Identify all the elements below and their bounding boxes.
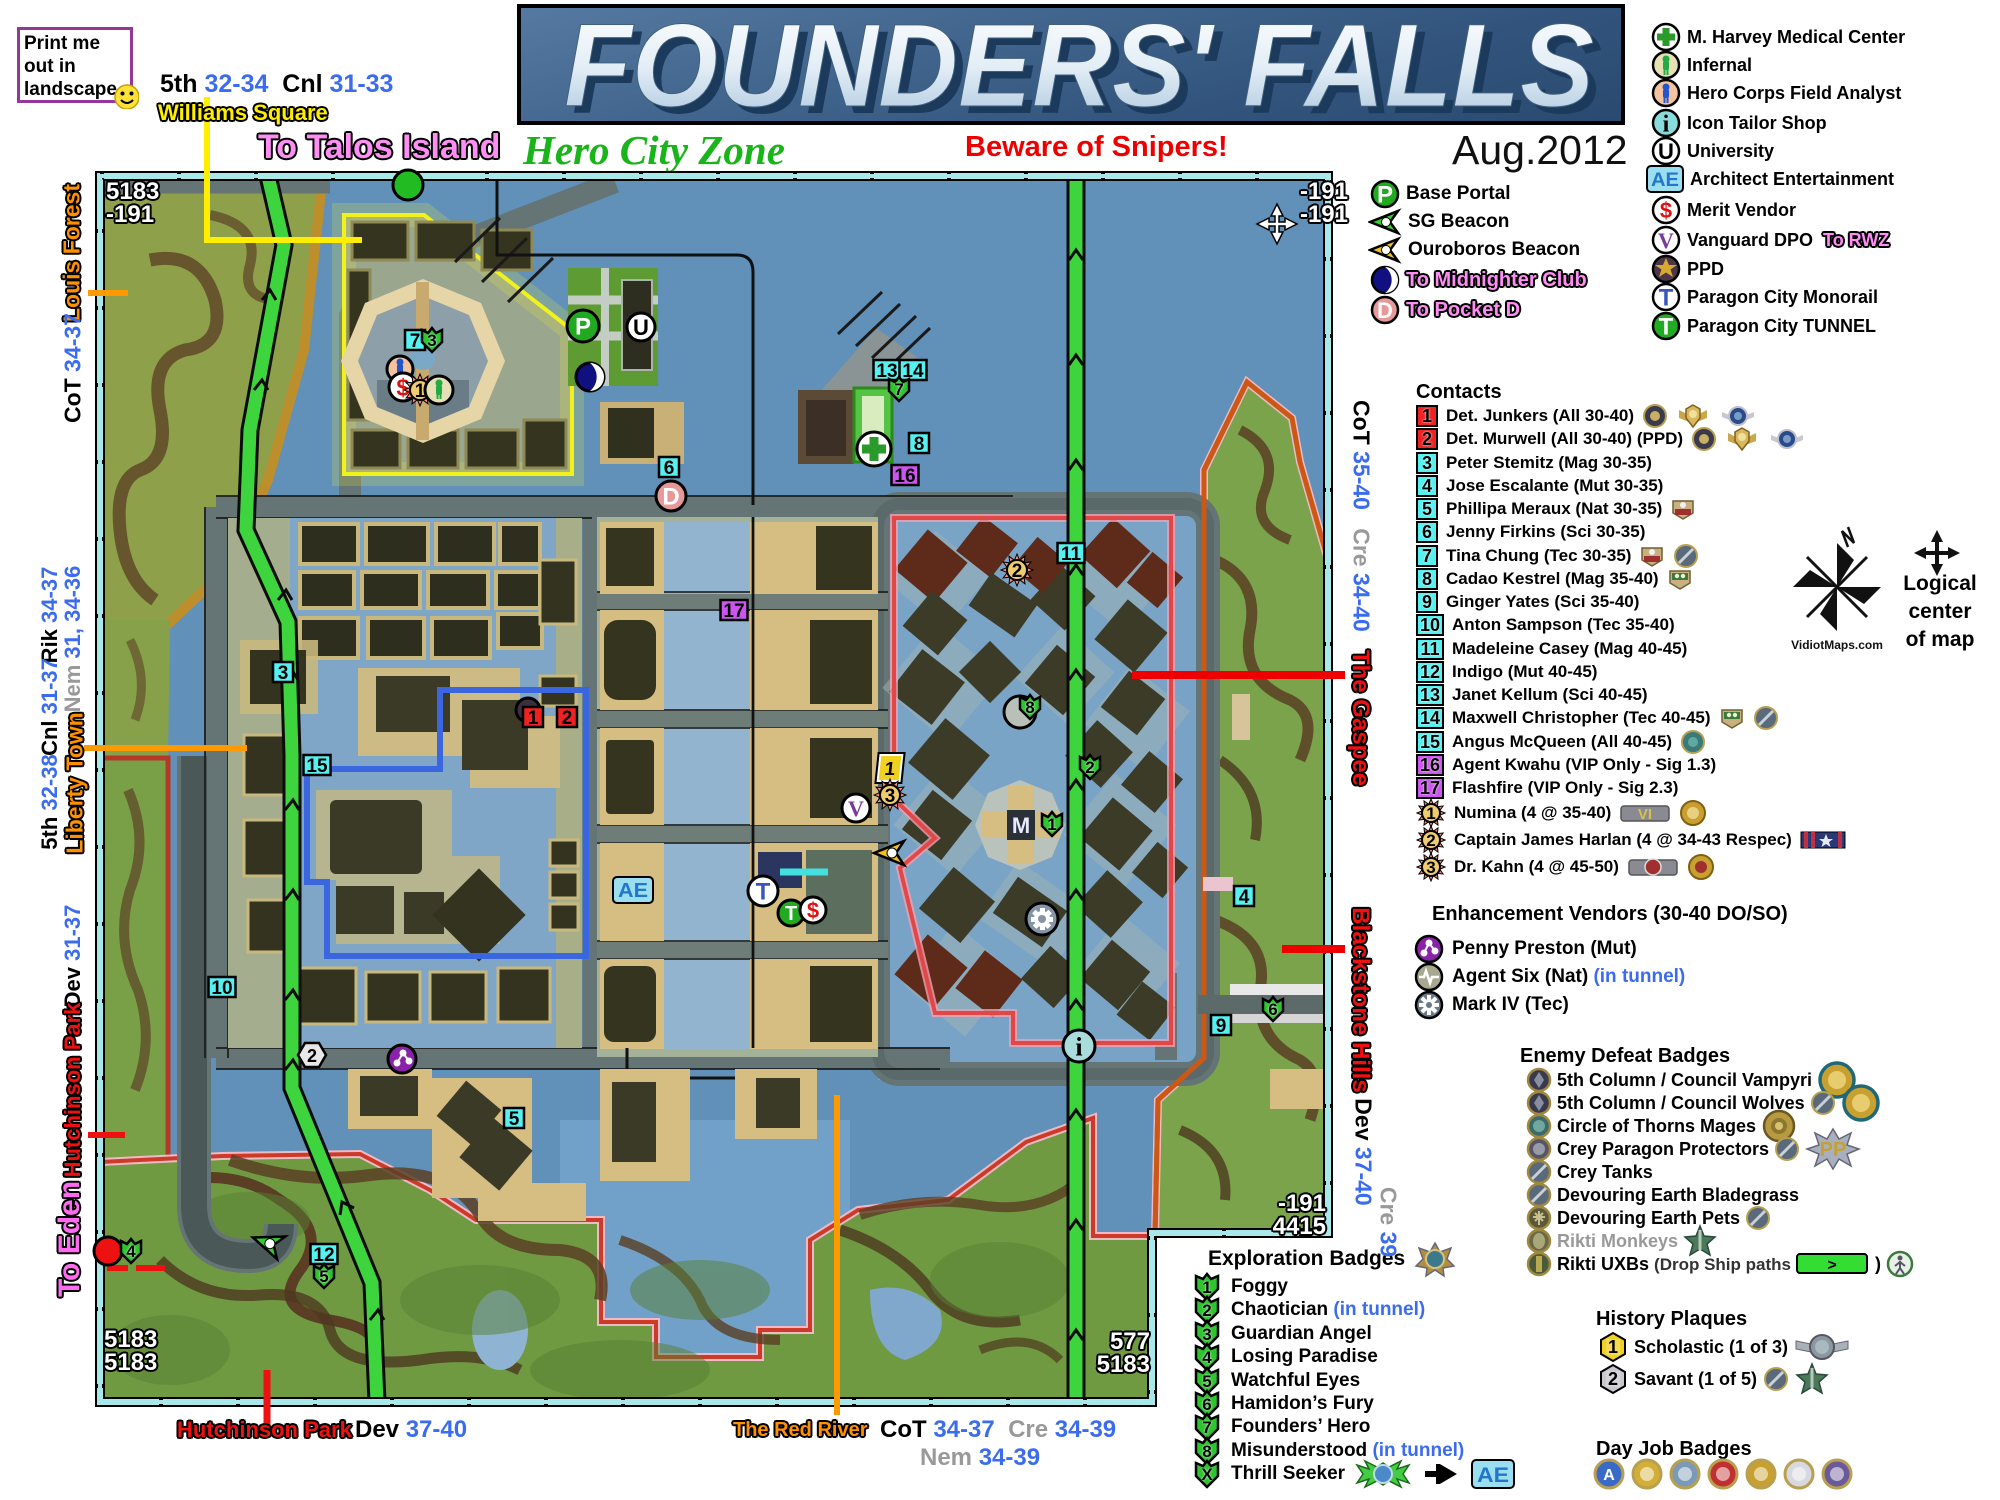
svg-text:2: 2 xyxy=(307,1046,317,1066)
svg-text:12: 12 xyxy=(1420,662,1440,682)
svg-text:>: > xyxy=(1827,1257,1836,1274)
svg-text:D: D xyxy=(662,484,679,511)
svg-text:4: 4 xyxy=(1202,1348,1212,1367)
svg-text:M: M xyxy=(1012,813,1030,838)
svg-text:P: P xyxy=(1377,182,1393,209)
svg-text:$: $ xyxy=(1660,198,1672,223)
svg-text:1: 1 xyxy=(1608,1337,1618,1357)
svg-text:AE: AE xyxy=(1651,170,1679,191)
svg-text:U: U xyxy=(1658,139,1674,164)
svg-text:1: 1 xyxy=(1422,406,1432,426)
svg-text:10: 10 xyxy=(211,978,232,999)
svg-text:9: 9 xyxy=(1422,592,1432,612)
svg-text:1: 1 xyxy=(1426,804,1435,823)
svg-text:17: 17 xyxy=(1420,778,1440,798)
svg-text:5: 5 xyxy=(1422,499,1432,519)
svg-text:7: 7 xyxy=(410,331,421,352)
svg-text:2: 2 xyxy=(1426,831,1435,850)
svg-text:8: 8 xyxy=(1422,569,1432,589)
svg-text:8: 8 xyxy=(1202,1442,1211,1461)
svg-text:1: 1 xyxy=(1047,815,1056,834)
svg-text:T: T xyxy=(785,903,797,925)
svg-text:P: P xyxy=(575,314,591,341)
svg-text:3: 3 xyxy=(1426,858,1435,877)
svg-text:PP: PP xyxy=(1820,1139,1847,1161)
svg-text:6: 6 xyxy=(1422,522,1432,542)
svg-text:11: 11 xyxy=(1061,544,1082,565)
svg-text:13: 13 xyxy=(876,361,897,382)
svg-text:16: 16 xyxy=(894,466,915,487)
svg-text:8: 8 xyxy=(1025,698,1034,717)
svg-text:3: 3 xyxy=(1422,453,1432,473)
svg-text:14: 14 xyxy=(902,361,924,382)
svg-text:8: 8 xyxy=(914,434,925,455)
svg-text:VidiotMaps.com: VidiotMaps.com xyxy=(1791,638,1883,652)
svg-text:A: A xyxy=(1603,1467,1615,1484)
svg-text:V: V xyxy=(848,796,864,821)
svg-text:5: 5 xyxy=(319,1267,328,1286)
svg-text:3: 3 xyxy=(427,331,436,350)
svg-text:D: D xyxy=(1377,298,1393,323)
svg-text:6: 6 xyxy=(1202,1395,1211,1414)
svg-text:$: $ xyxy=(807,898,819,923)
svg-text:T: T xyxy=(1659,314,1674,341)
svg-text:2: 2 xyxy=(562,708,573,729)
svg-text:T: T xyxy=(756,879,771,906)
svg-text:2: 2 xyxy=(1012,561,1023,582)
svg-text:4: 4 xyxy=(1422,476,1432,496)
svg-text:6: 6 xyxy=(664,458,675,479)
svg-text:16: 16 xyxy=(1420,755,1440,775)
svg-text:i: i xyxy=(1663,112,1670,138)
svg-text:5: 5 xyxy=(509,1109,520,1130)
svg-text:14: 14 xyxy=(1420,708,1440,728)
svg-text:6: 6 xyxy=(1268,1000,1277,1019)
svg-text:2: 2 xyxy=(1085,758,1094,777)
svg-text:VI: VI xyxy=(1638,806,1652,823)
svg-text:AE: AE xyxy=(618,880,648,902)
svg-text:11: 11 xyxy=(1420,639,1439,659)
svg-text:T: T xyxy=(1659,285,1674,312)
svg-text:10: 10 xyxy=(1420,615,1440,635)
svg-text:3: 3 xyxy=(1202,1325,1211,1344)
svg-text:2: 2 xyxy=(1608,1369,1618,1389)
svg-text:13: 13 xyxy=(1420,685,1440,705)
svg-text:AE: AE xyxy=(1477,1464,1509,1487)
svg-text:X: X xyxy=(1201,1465,1213,1484)
svg-text:17: 17 xyxy=(723,601,744,622)
svg-text:V: V xyxy=(1658,228,1674,253)
svg-text:3: 3 xyxy=(885,786,896,807)
svg-text:2: 2 xyxy=(1202,1301,1211,1320)
svg-text:4: 4 xyxy=(126,1242,136,1261)
svg-text:U: U xyxy=(633,315,649,340)
svg-text:7: 7 xyxy=(1422,546,1432,566)
svg-text:15: 15 xyxy=(306,756,328,777)
svg-text:15: 15 xyxy=(1420,732,1440,752)
svg-text:1: 1 xyxy=(528,708,539,729)
svg-text:1: 1 xyxy=(1202,1278,1211,1297)
svg-text:7: 7 xyxy=(1202,1418,1211,1437)
svg-text:3: 3 xyxy=(278,663,289,684)
svg-text:4: 4 xyxy=(1239,887,1250,908)
svg-text:i: i xyxy=(1075,1032,1082,1061)
svg-text:5: 5 xyxy=(1202,1372,1211,1391)
svg-text:2: 2 xyxy=(1422,429,1432,449)
svg-text:7: 7 xyxy=(894,380,903,399)
svg-text:9: 9 xyxy=(1216,1016,1227,1037)
